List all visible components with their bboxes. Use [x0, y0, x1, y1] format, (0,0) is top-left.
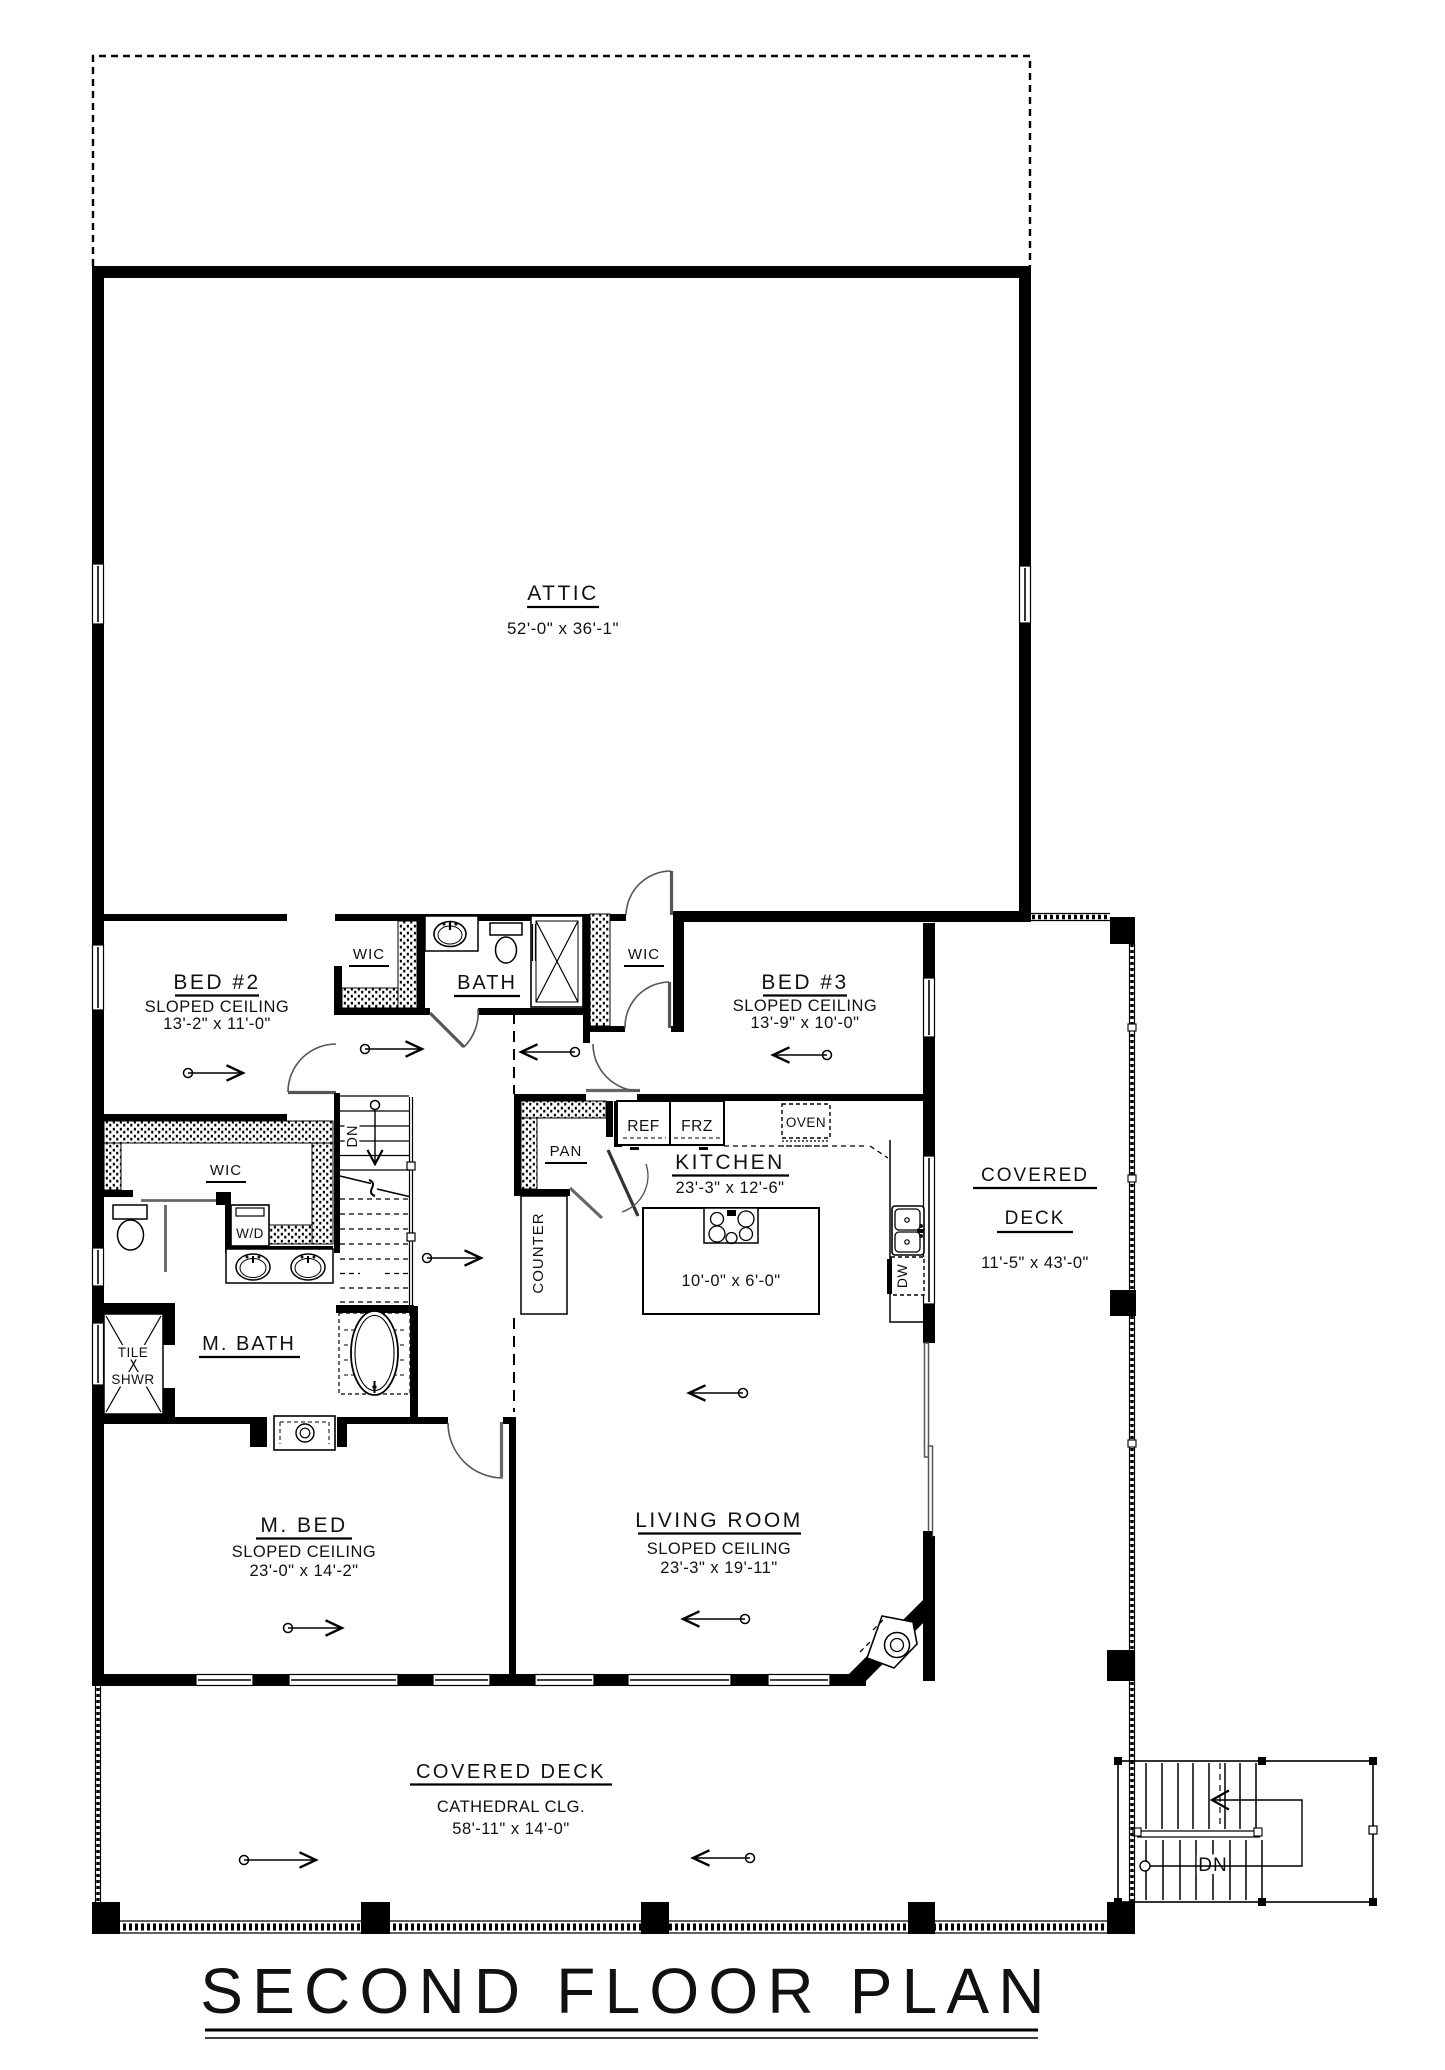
svg-text:BED #2: BED #2 [173, 971, 260, 994]
svg-text:23'-0" x 14'-2": 23'-0" x 14'-2" [250, 1562, 359, 1580]
svg-text:SLOPED CEILING: SLOPED CEILING [647, 1540, 792, 1558]
svg-text:LIVING ROOM: LIVING ROOM [635, 1509, 803, 1532]
svg-text:13'-2" x 11'-0": 13'-2" x 11'-0" [163, 1015, 271, 1033]
svg-text:DN: DN [345, 1125, 361, 1148]
svg-text:SLOPED CEILING: SLOPED CEILING [145, 998, 290, 1016]
svg-text:52'-0" x 36'-1": 52'-0" x 36'-1" [507, 619, 619, 638]
svg-text:ATTIC: ATTIC [527, 582, 599, 605]
svg-text:11'-5" x 43'-0": 11'-5" x 43'-0" [981, 1254, 1089, 1272]
svg-text:M. BATH: M. BATH [202, 1333, 296, 1355]
svg-text:58'-11" x 14'-0": 58'-11" x 14'-0" [452, 1820, 569, 1838]
svg-text:BATH: BATH [457, 972, 517, 994]
svg-text:23'-3" x 12'-6": 23'-3" x 12'-6" [676, 1179, 785, 1197]
svg-text:DW: DW [894, 1264, 910, 1289]
svg-text:M. BED: M. BED [260, 1514, 347, 1537]
svg-text:WIC: WIC [628, 946, 660, 963]
svg-text:23'-3" x 19'-11": 23'-3" x 19'-11" [660, 1559, 777, 1577]
svg-text:WIC: WIC [353, 946, 385, 963]
svg-text:REF: REF [627, 1118, 660, 1135]
svg-text:BED #3: BED #3 [761, 971, 848, 994]
svg-text:13'-9" x 10'-0": 13'-9" x 10'-0" [751, 1014, 860, 1032]
svg-text:FRZ: FRZ [681, 1118, 713, 1135]
svg-text:COVERED: COVERED [981, 1165, 1089, 1186]
svg-text:SHWR: SHWR [111, 1372, 154, 1387]
svg-text:COVERED DECK: COVERED DECK [416, 1761, 606, 1783]
svg-text:SLOPED CEILING: SLOPED CEILING [733, 997, 878, 1015]
svg-text:CATHEDRAL CLG.: CATHEDRAL CLG. [437, 1798, 585, 1816]
svg-text:KITCHEN: KITCHEN [675, 1151, 785, 1174]
svg-text:W/D: W/D [236, 1226, 264, 1241]
svg-text:OVEN: OVEN [786, 1115, 826, 1130]
svg-text:PAN: PAN [550, 1143, 583, 1160]
svg-text:10'-0" x 6'-0": 10'-0" x 6'-0" [681, 1272, 780, 1290]
svg-text:COUNTER: COUNTER [530, 1212, 547, 1293]
svg-text:TILE: TILE [118, 1345, 149, 1360]
svg-text:WIC: WIC [210, 1162, 242, 1179]
svg-text:SLOPED CEILING: SLOPED CEILING [232, 1543, 377, 1561]
svg-text:SECOND FLOOR PLAN: SECOND FLOOR PLAN [200, 1955, 1053, 2027]
svg-text:DECK: DECK [1005, 1208, 1066, 1229]
